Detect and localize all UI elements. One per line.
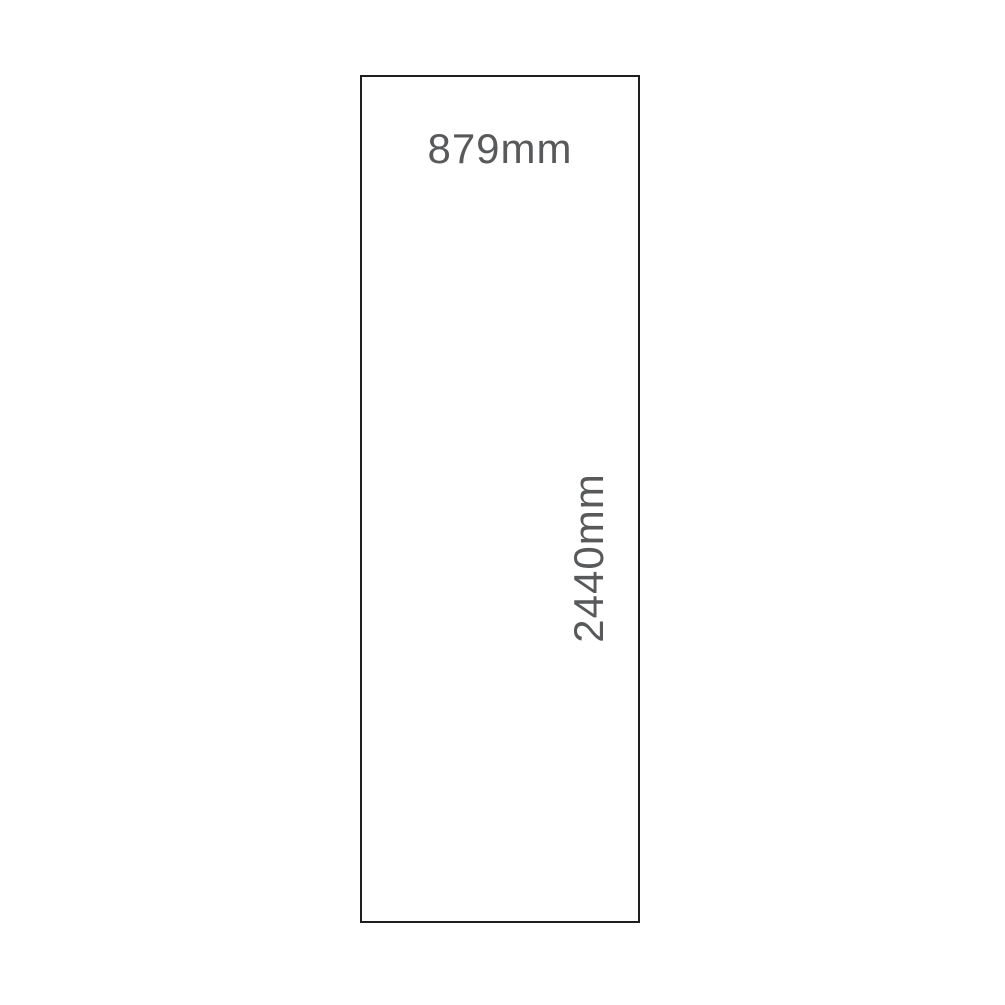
width-dimension-label: 879mm xyxy=(360,128,640,170)
height-dimension-label: 2440mm xyxy=(568,473,610,642)
